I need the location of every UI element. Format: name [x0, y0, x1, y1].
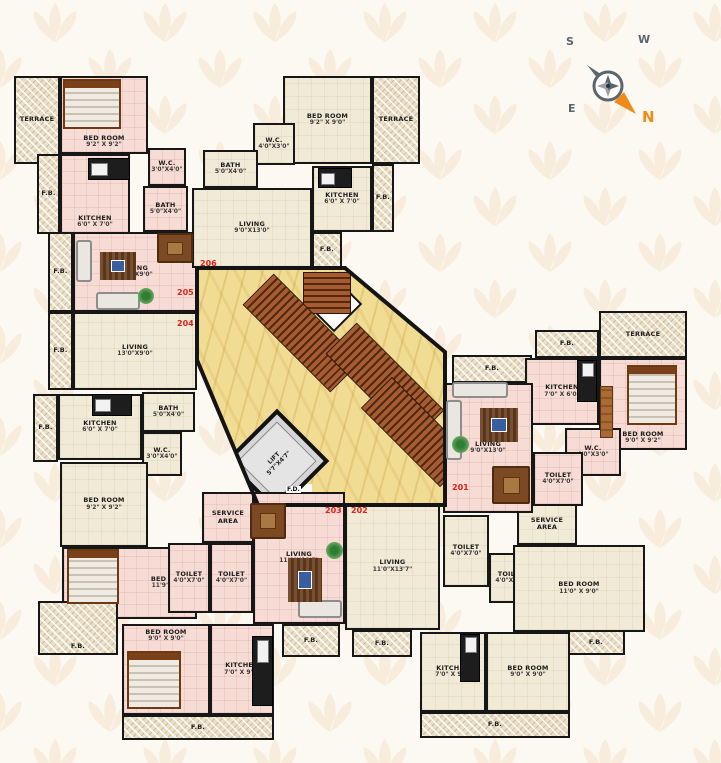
compass: S W E N [548, 26, 708, 151]
floor-plan: LIFT 5'7"X4'7" TERRACEBED ROOM9'2" X 9'2… [0, 0, 721, 763]
flat-number-206: 206 [200, 259, 217, 268]
flat-number-205: 205 [177, 288, 194, 297]
compass-north-label: N [642, 108, 655, 126]
flat-number-204: 204 [177, 319, 194, 328]
flat-number-203: 203 [325, 506, 342, 515]
compass-south-label: S [566, 35, 574, 48]
compass-east-label: E [568, 102, 576, 115]
fd-label: F.D. [286, 486, 301, 493]
flat-number-202: 202 [351, 506, 368, 515]
flat-number-201: 201 [452, 483, 469, 492]
compass-west-label: W [638, 33, 650, 46]
